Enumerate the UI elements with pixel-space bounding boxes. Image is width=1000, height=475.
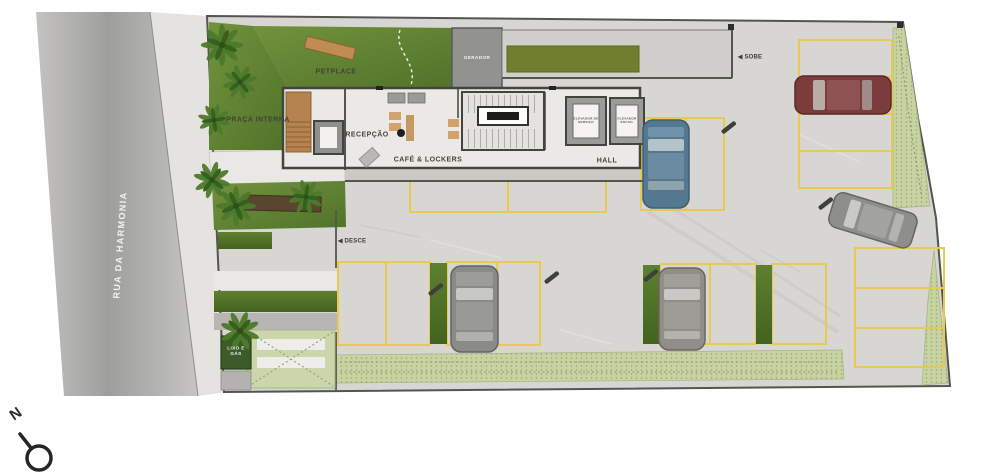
- site-plan-canvas: [0, 0, 1000, 475]
- compass-icon: [20, 434, 51, 470]
- reception-chair: [397, 129, 405, 137]
- street-rua-da-harmonia: [36, 12, 226, 396]
- building: [283, 86, 648, 181]
- car-gray-bottom-2: [659, 268, 705, 350]
- car-gray-bottom-1: [451, 266, 498, 352]
- praca-elevator: [314, 121, 343, 154]
- elevator-social: [610, 98, 644, 144]
- building-walkway: [345, 170, 640, 180]
- stair-core: [462, 92, 544, 150]
- car-red: [795, 76, 891, 114]
- car-blue: [643, 120, 689, 208]
- site-plan: RUA DA HARMONIA PETPLACE PRAÇA INTERNA R…: [0, 0, 1000, 475]
- gerador-box: [452, 28, 502, 92]
- entry-crossing: [247, 330, 335, 388]
- petplace-lawn: [253, 26, 457, 88]
- green-roof-strip: [507, 46, 639, 72]
- elevator-servico: [566, 97, 606, 145]
- wood-deck-stairs: [286, 92, 311, 152]
